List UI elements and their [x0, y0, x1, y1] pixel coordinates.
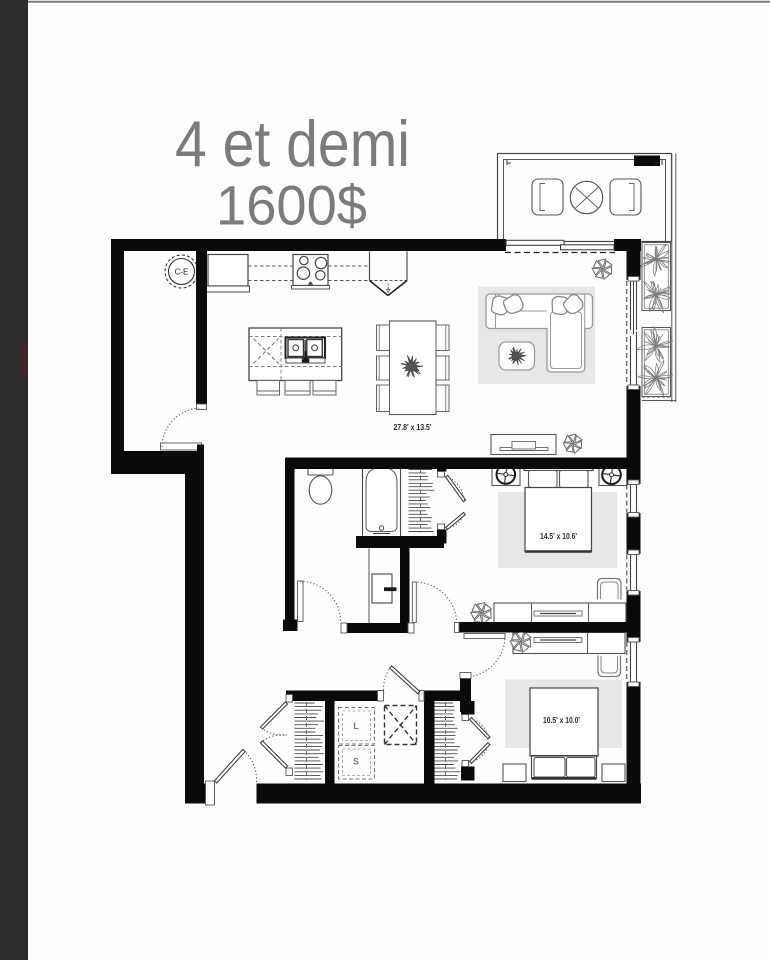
svg-text:27.8' x 13.5': 27.8' x 13.5'	[394, 423, 432, 432]
svg-text:14.5' x 10.6': 14.5' x 10.6'	[540, 532, 577, 541]
svg-text:10.5' x 10.0': 10.5' x 10.0'	[543, 716, 580, 725]
svg-text:4 et demi: 4 et demi	[175, 107, 410, 180]
svg-text:1600$: 1600$	[216, 174, 367, 237]
svg-text:C-E: C-E	[175, 267, 189, 276]
svg-text:L: L	[353, 721, 359, 731]
svg-text:S: S	[353, 757, 359, 767]
